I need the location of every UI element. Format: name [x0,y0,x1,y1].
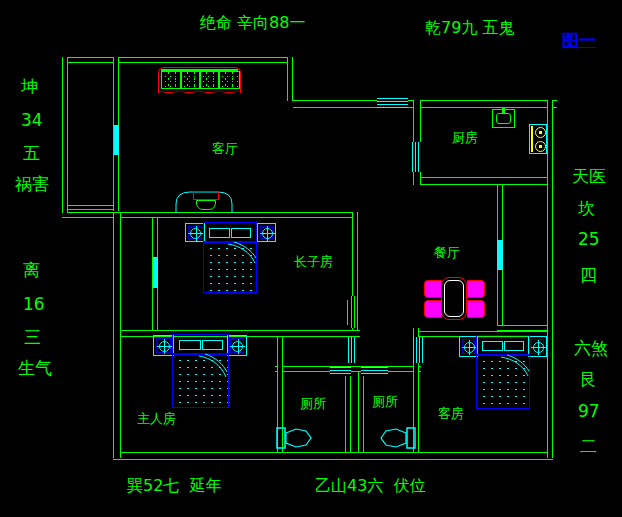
bed-mattress [476,354,530,409]
sofa-skirt [199,87,219,93]
pillow [504,341,524,351]
bed-mattress [172,353,229,408]
nightstand [185,223,205,242]
annotation-top-left: 绝命 辛向88一 [200,14,305,32]
room-label-kitchen: 厨房 [452,131,478,145]
lamp-symbol-icon [232,341,243,352]
annotation-right-lower-1: 六煞 [574,339,608,358]
dining-chair [424,300,442,318]
sofa-skirt [159,87,179,93]
annotation-right-upper-1: 天医 [572,167,606,186]
lamp-symbol-icon [262,228,273,239]
wall-bottom-outer [113,452,553,460]
wall-kitchen-bottom [413,177,553,185]
pillow [202,340,223,350]
annotation-left-upper-4: 祸害 [15,175,49,194]
wall-top-living [62,57,293,63]
stove-burner-icon [535,127,546,138]
pillow [482,341,503,351]
annotation-right-lower-2: 艮 [580,370,597,389]
wall-left-outer-top [62,57,68,213]
sink-basin [496,113,511,124]
dining-chair [424,280,442,298]
annotation-right-lower-4: 二 [580,437,597,456]
annotation-bottom-left: 巽52七 延年 [127,477,222,495]
bed-headboard [203,222,257,243]
nightstand [153,335,174,356]
room-label-eldest-son: 长子房 [294,255,333,269]
wall-top-kitchen [293,100,557,108]
dining-table [441,277,467,320]
corridor-door [153,257,158,288]
lamp-symbol-icon [464,342,475,353]
figure-label: 图一 [562,31,596,50]
pillow [209,228,230,238]
bed-headboard [172,334,229,355]
sofa [158,67,241,93]
tv-screen [193,191,219,200]
bed-mattress [203,241,257,293]
dining-chair [467,280,485,298]
sofa-skirt [179,87,199,93]
kitchen-door [412,142,421,172]
room-label-toilet-left: 厕所 [300,397,326,411]
tv-base [196,200,216,210]
room-label-guest: 客房 [438,407,464,421]
annotation-bottom-right: 乙山43六 伏位 [315,477,426,495]
blanket-fold [501,355,529,377]
annotation-left-lower-2: 16 [23,295,45,314]
bed-headboard [476,335,530,356]
annotation-left-lower-4: 生气 [18,359,52,378]
room-label-dining: 餐厅 [434,246,460,260]
toilet-fixture-left [276,426,314,450]
nightstand [528,336,547,357]
wall-closet-bottom [62,205,119,210]
annotation-right-upper-2: 坎 [578,199,595,218]
dining-chair [467,300,485,318]
kitchen-stove [529,124,547,154]
blanket-fold [199,354,227,378]
toilet-left-door [330,367,351,376]
lamp-symbol-icon [159,341,170,352]
annotation-left-upper-2: 34 [21,111,43,130]
sink-faucet-icon [502,108,505,113]
wall-toilet-mid-left [345,372,351,452]
pillow [179,340,201,350]
toilet-fixture-right [378,426,416,450]
toilet-right-door [361,367,388,376]
wall-corridor-bottom [497,325,553,331]
sofa-skirt [219,87,239,93]
nightstand [227,335,247,356]
dining-top-window [377,98,408,108]
kitchen-sink [492,109,515,128]
wall-step [287,57,293,101]
lamp-symbol-icon [190,228,201,239]
corridor-window [497,240,503,270]
annotation-right-upper-3: 25 [578,230,600,249]
dining-table-top [444,280,464,317]
annotation-left-upper-1: 坤 [21,77,38,96]
annotation-left-lower-3: 三 [24,328,41,347]
annotation-left-upper-3: 五 [23,144,40,163]
room-label-toilet-right: 厕所 [372,395,398,409]
stove-burner-icon [535,141,546,152]
guest-room-door [413,337,423,363]
nightstand [257,223,276,242]
hall-door [348,337,357,363]
stove-edge [531,126,533,152]
wall-toilet-mid-right [358,372,364,452]
floor-plan-canvas: 客厅 厨房 长子房 餐厅 主人房 厕所 厕所 客房 绝命 辛向88一 乾79九 … [0,0,622,517]
blanket-fold [228,242,256,264]
pillow [231,228,251,238]
annotation-right-upper-4: 四 [580,266,597,285]
eldest-room-window [351,296,359,328]
annotation-right-lower-3: 97 [578,402,600,421]
closet-door [114,125,119,155]
room-label-living: 客厅 [212,142,238,156]
wall-right-outer [547,100,553,458]
wall-left-outer-lower [113,213,121,458]
annotation-top-right: 乾79九 五鬼 [425,19,514,37]
lamp-symbol-icon [533,342,544,353]
room-label-master: 主人房 [137,412,176,426]
annotation-left-lower-1: 离 [23,261,40,280]
